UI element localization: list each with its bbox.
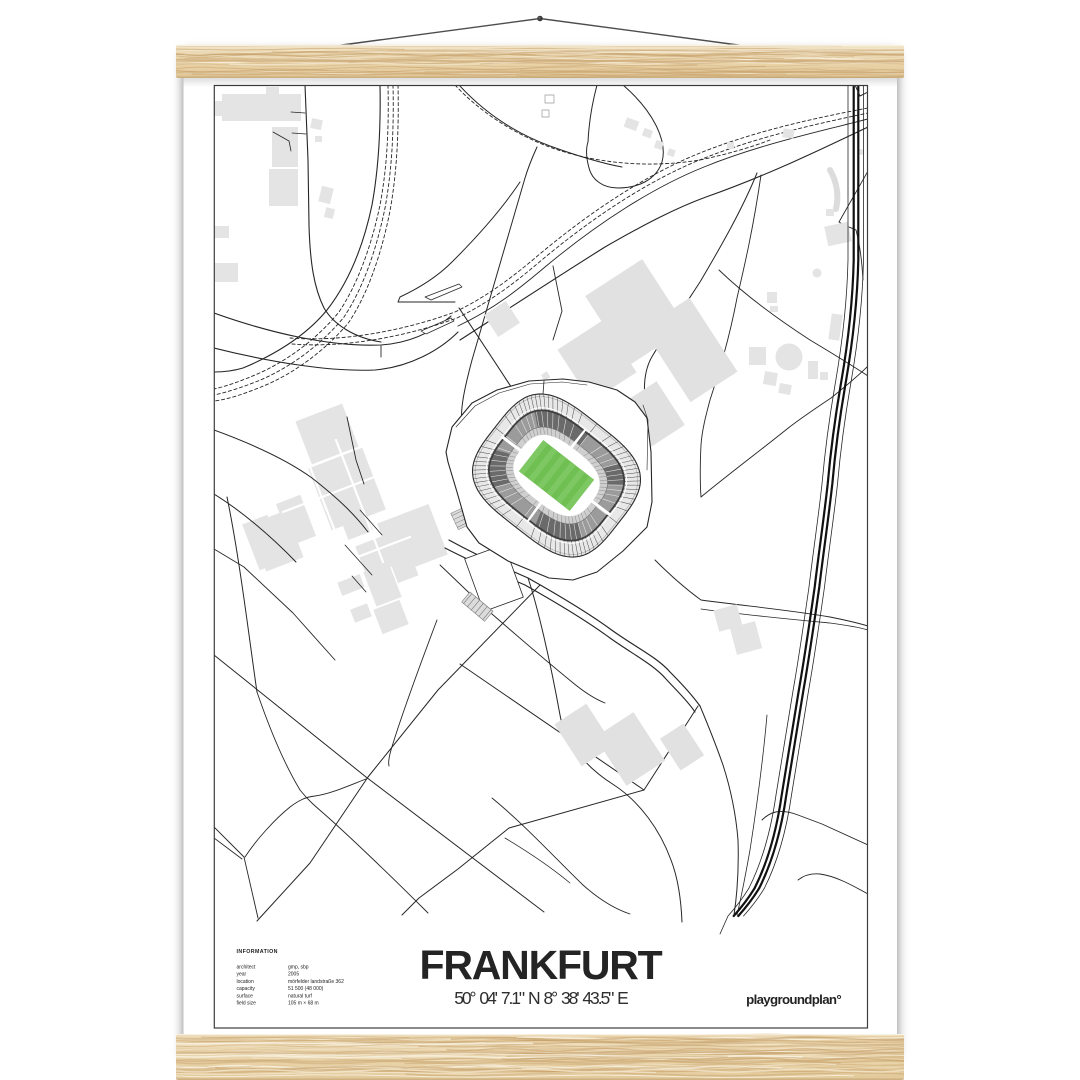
svg-text:field size: field size — [237, 1001, 257, 1007]
svg-text:mörfelder landstraße 362: mörfelder landstraße 362 — [288, 979, 344, 985]
svg-text:architect: architect — [237, 964, 257, 970]
svg-text:51 500 (48 000): 51 500 (48 000) — [288, 986, 324, 992]
svg-text:2005: 2005 — [288, 972, 299, 978]
svg-text:location: location — [237, 979, 254, 985]
svg-text:105 m × 68 m: 105 m × 68 m — [288, 1001, 319, 1007]
svg-text:capacity: capacity — [237, 986, 256, 992]
svg-text:gmp, sbp: gmp, sbp — [288, 964, 309, 970]
svg-text:playgroundplan°: playgroundplan° — [746, 992, 841, 1007]
svg-text:INFORMATION: INFORMATION — [237, 949, 278, 955]
svg-text:FRANKFURT: FRANKFURT — [420, 942, 663, 988]
svg-text:surface: surface — [237, 993, 254, 999]
svg-text:year: year — [237, 972, 247, 978]
svg-text:natural turf: natural turf — [288, 993, 313, 999]
svg-text:50° 04' 7.1" N 8° 38' 43.5" E: 50° 04' 7.1" N 8° 38' 43.5" E — [454, 988, 628, 1008]
